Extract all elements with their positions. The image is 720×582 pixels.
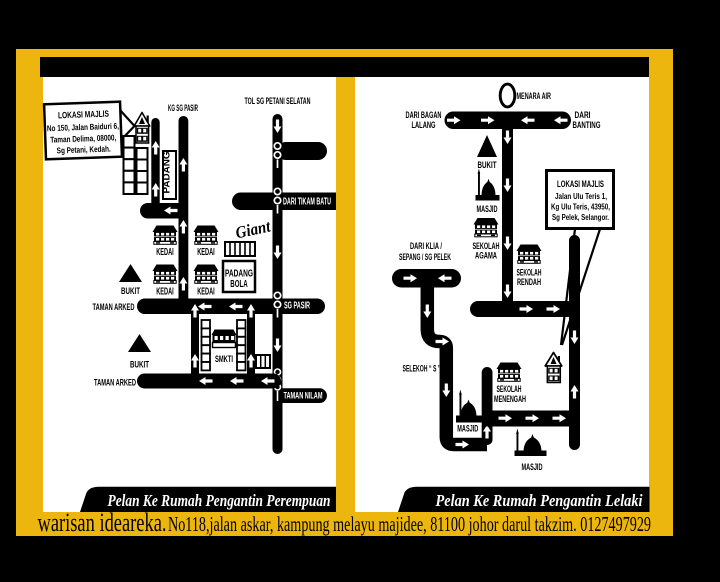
svg-text:Kg Ulu Teris, 43950,: Kg Ulu Teris, 43950, bbox=[551, 202, 610, 212]
svg-text:warisan ideareka.: warisan ideareka. bbox=[38, 508, 167, 537]
svg-text:BUKIT: BUKIT bbox=[478, 160, 497, 171]
svg-text:DARI KLIA /: DARI KLIA / bbox=[410, 241, 442, 252]
svg-text:PADANG: PADANG bbox=[225, 269, 253, 280]
svg-text:TOL SG PETANI SELATAN: TOL SG PETANI SELATAN bbox=[245, 96, 311, 107]
svg-text:MENENGAH: MENENGAH bbox=[494, 394, 526, 405]
svg-text:BUKIT: BUKIT bbox=[130, 360, 149, 371]
svg-text:SELEKOH “ S ”: SELEKOH “ S ” bbox=[403, 364, 441, 375]
svg-text:MENARA AIR: MENARA AIR bbox=[517, 91, 552, 101]
svg-text:MASJID: MASJID bbox=[522, 462, 543, 473]
svg-text:No118,jalan askar, kampung mel: No118,jalan askar, kampung melayu majide… bbox=[168, 512, 651, 536]
svg-text:SEPANG / SG PELEK: SEPANG / SG PELEK bbox=[399, 252, 451, 263]
svg-text:LALANG: LALANG bbox=[412, 120, 436, 131]
svg-text:AGAMA: AGAMA bbox=[475, 251, 497, 262]
svg-text:Sg Petani, Kedah.: Sg Petani, Kedah. bbox=[57, 144, 111, 156]
svg-text:PADANG: PADANG bbox=[162, 152, 172, 194]
svg-text:Sg Pelek, Selangor.: Sg Pelek, Selangor. bbox=[552, 212, 609, 222]
svg-text:KEDAI: KEDAI bbox=[156, 247, 174, 258]
svg-text:LOKASI MAJLIS: LOKASI MAJLIS bbox=[58, 109, 109, 121]
svg-text:TAMAN ARKED: TAMAN ARKED bbox=[93, 302, 135, 313]
svg-text:DARI TIKAM BATU: DARI TIKAM BATU bbox=[283, 197, 331, 208]
svg-text:BOLA: BOLA bbox=[230, 279, 248, 290]
svg-text:BUKIT: BUKIT bbox=[121, 286, 140, 297]
svg-text:RENDAH: RENDAH bbox=[517, 277, 541, 288]
svg-text:LOKASI MAJLIS: LOKASI MAJLIS bbox=[557, 179, 604, 189]
svg-text:TAMAN NILAM: TAMAN NILAM bbox=[284, 391, 323, 401]
svg-text:MASJID: MASJID bbox=[477, 204, 498, 215]
svg-text:BANTING: BANTING bbox=[573, 120, 601, 131]
svg-text:SG PASIR: SG PASIR bbox=[284, 300, 310, 312]
svg-text:MASJID: MASJID bbox=[457, 424, 478, 435]
svg-text:KEDAI: KEDAI bbox=[156, 287, 174, 298]
svg-text:Pelan Ke Rumah Pengantin Lelak: Pelan Ke Rumah Pengantin Lelaki bbox=[435, 491, 643, 510]
svg-text:KG SG PASIR: KG SG PASIR bbox=[168, 103, 198, 113]
svg-text:SMKTI: SMKTI bbox=[215, 354, 233, 365]
svg-text:KEDAI: KEDAI bbox=[197, 247, 215, 258]
svg-text:KEDAI: KEDAI bbox=[197, 287, 215, 298]
svg-text:Jalan Ulu Teris 1,: Jalan Ulu Teris 1, bbox=[555, 191, 607, 201]
svg-text:TAMAN ARKED: TAMAN ARKED bbox=[94, 378, 136, 389]
